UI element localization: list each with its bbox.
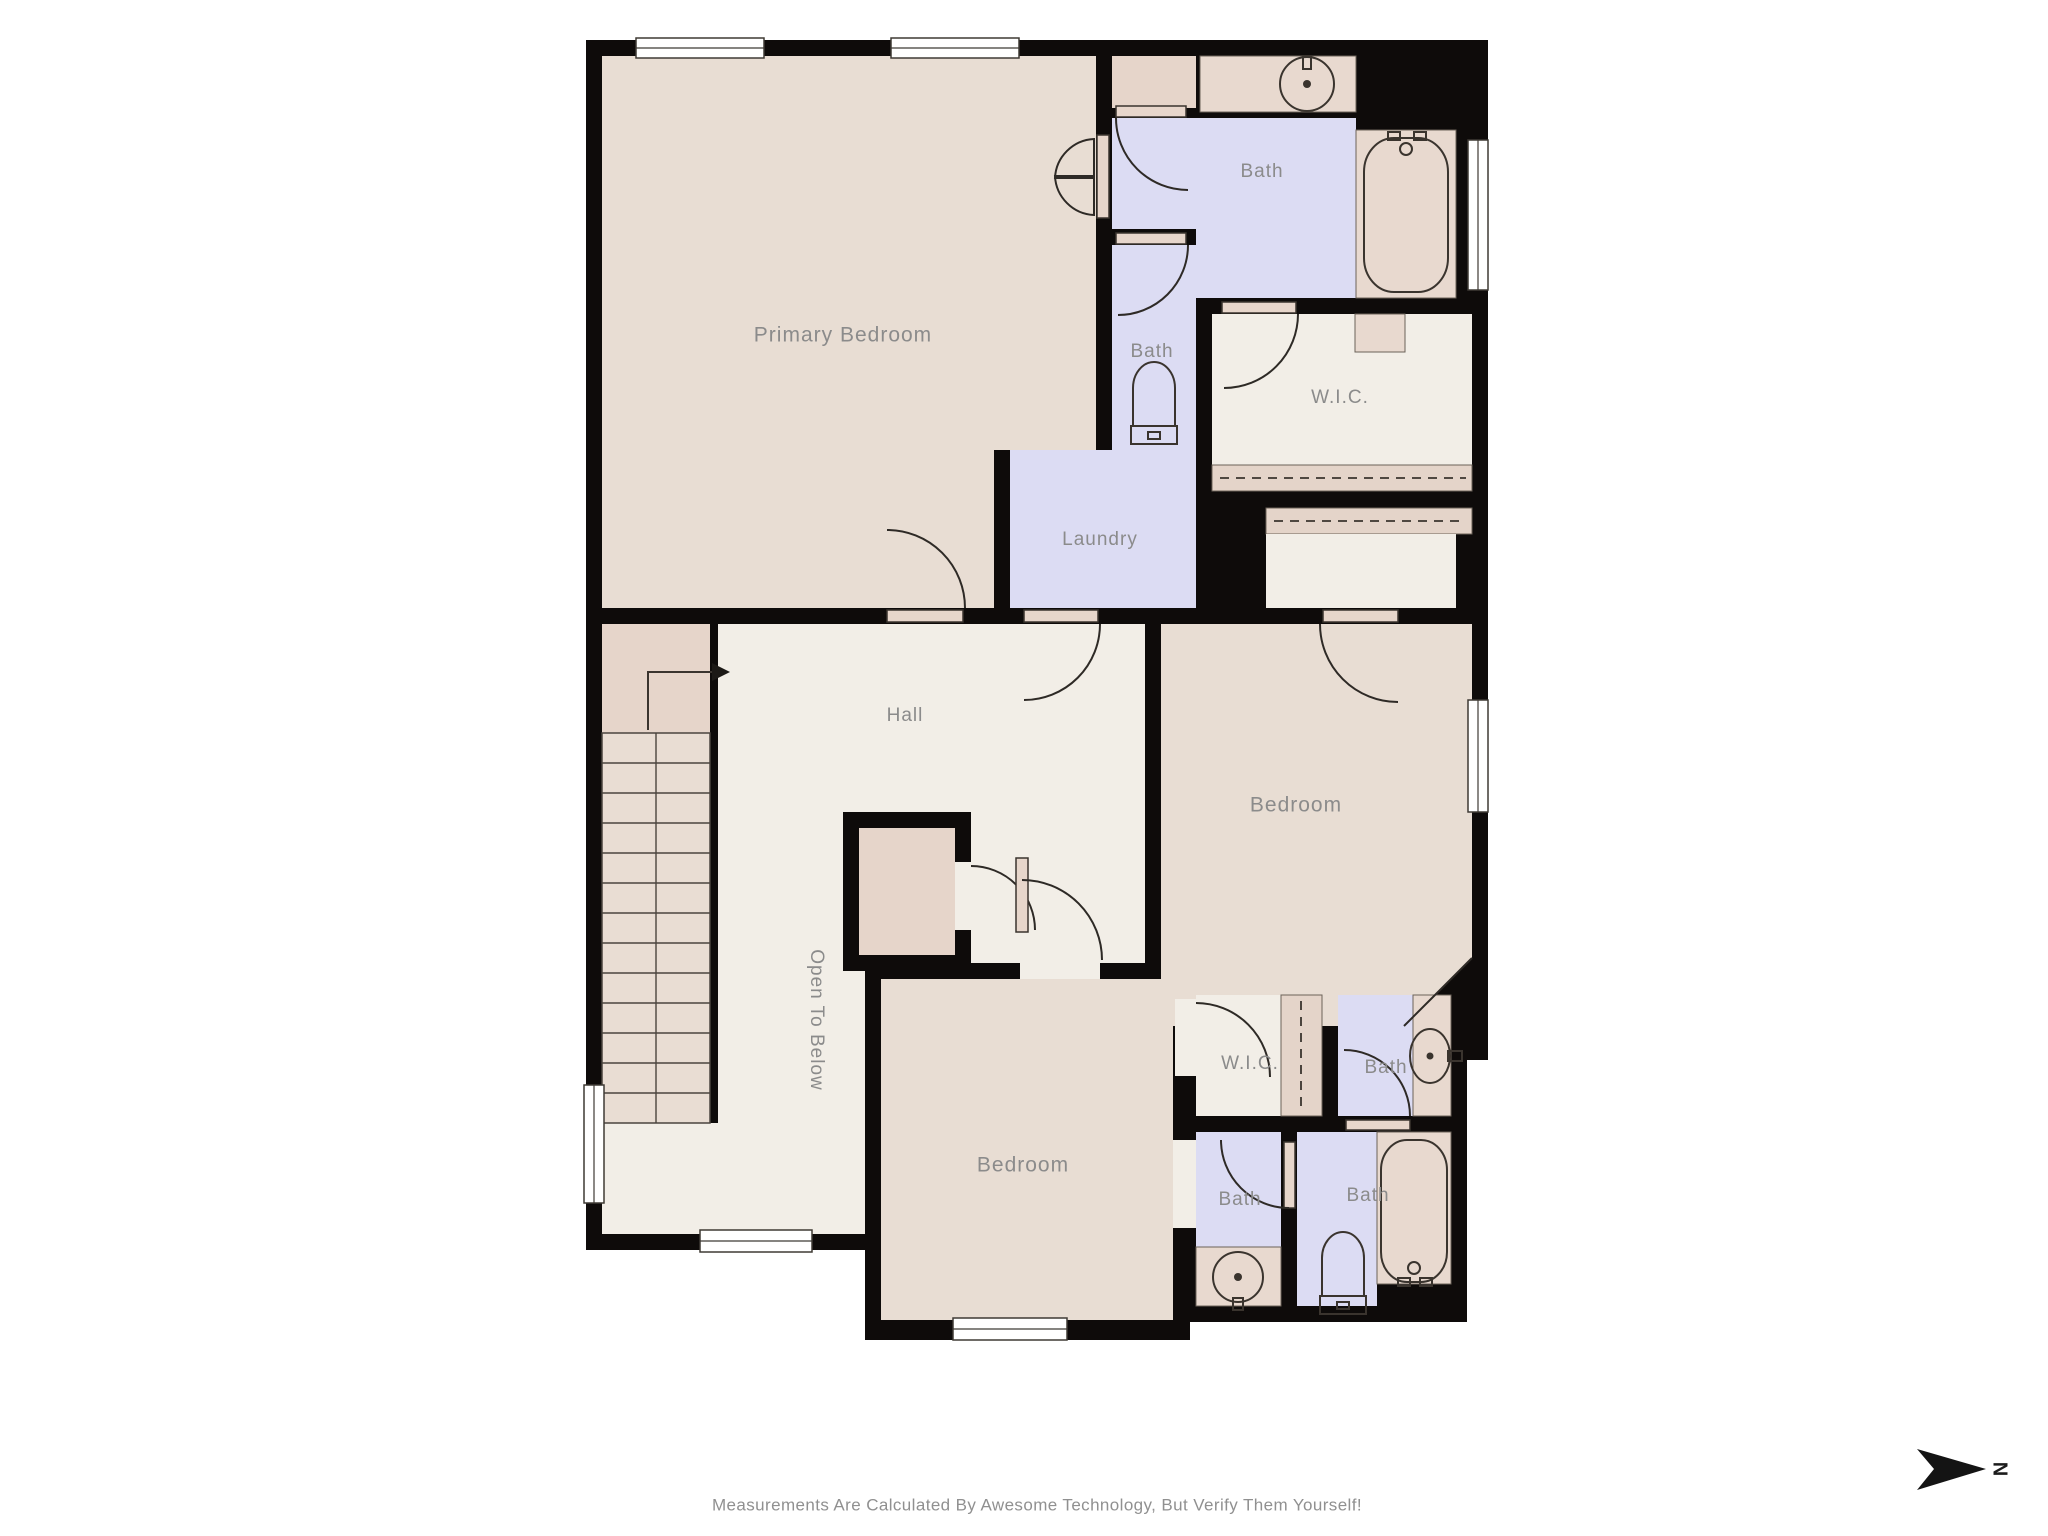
lower-wic-label: W.I.C.: [1221, 1053, 1279, 1074]
vanity-bath-label: Bath: [1364, 1057, 1407, 1078]
vanity-bath-door: [1346, 1120, 1410, 1130]
primary-bath-counter: [1200, 56, 1356, 112]
small-lower-bath-door: [1284, 1142, 1295, 1208]
small-lower-bath-label: Bath: [1218, 1189, 1261, 1210]
upper-small-bath-door: [1116, 233, 1186, 244]
window-icon: [891, 38, 1019, 58]
laundry-door: [1024, 610, 1098, 622]
open-below-floor-bottom: [602, 1123, 865, 1234]
primary-bedroom-label: Primary Bedroom: [754, 324, 932, 347]
primary-bath-door: [1097, 135, 1109, 218]
window-icon: [636, 38, 764, 58]
hall-label: Hall: [887, 705, 924, 726]
north-arrow-icon: N: [1917, 1449, 2011, 1490]
upper-wic-shelf: [1355, 314, 1405, 352]
bedroom-bottom-floor: [881, 979, 1173, 1320]
bedroom-bottom-label: Bedroom: [977, 1154, 1069, 1177]
window-icon: [1468, 140, 1488, 290]
upper-small-bath-label: Bath: [1130, 341, 1173, 362]
floorplan-page: Primary Bedroom Bath Bath W.I.C. Laundry…: [0, 0, 2048, 1536]
open-to-below-label: Open To Below: [806, 949, 827, 1091]
disclaimer-text: Measurements Are Calculated By Awesome T…: [712, 1495, 1362, 1514]
laundry-label: Laundry: [1062, 529, 1138, 550]
compass-north-label: N: [1989, 1462, 2011, 1476]
window-icon: [953, 1318, 1067, 1340]
primary-closet-floor: [1112, 56, 1196, 108]
upper-wic-label: W.I.C.: [1311, 387, 1369, 408]
upper-wic-door: [1222, 302, 1296, 313]
primary-bath-label: Bath: [1240, 161, 1283, 182]
tub-bath-label: Bath: [1346, 1185, 1389, 1206]
hall-closet-floor: [859, 828, 955, 955]
bedroom-right-floor: [1161, 624, 1472, 1026]
primary-closet-door: [1116, 106, 1186, 117]
window-icon: [1468, 700, 1488, 812]
vanity-bath-floor: [1338, 995, 1413, 1116]
bedroom-right-label: Bedroom: [1250, 794, 1342, 817]
bedroom-right-door: [1323, 610, 1398, 622]
stair-landing: [602, 624, 710, 733]
primary-bedroom-door: [887, 610, 963, 622]
floorplan-canvas: Primary Bedroom Bath Bath W.I.C. Laundry…: [0, 0, 2048, 1536]
closet-nook-floor: [1266, 534, 1456, 608]
window-icon: [700, 1230, 812, 1252]
window-icon: [584, 1085, 604, 1203]
